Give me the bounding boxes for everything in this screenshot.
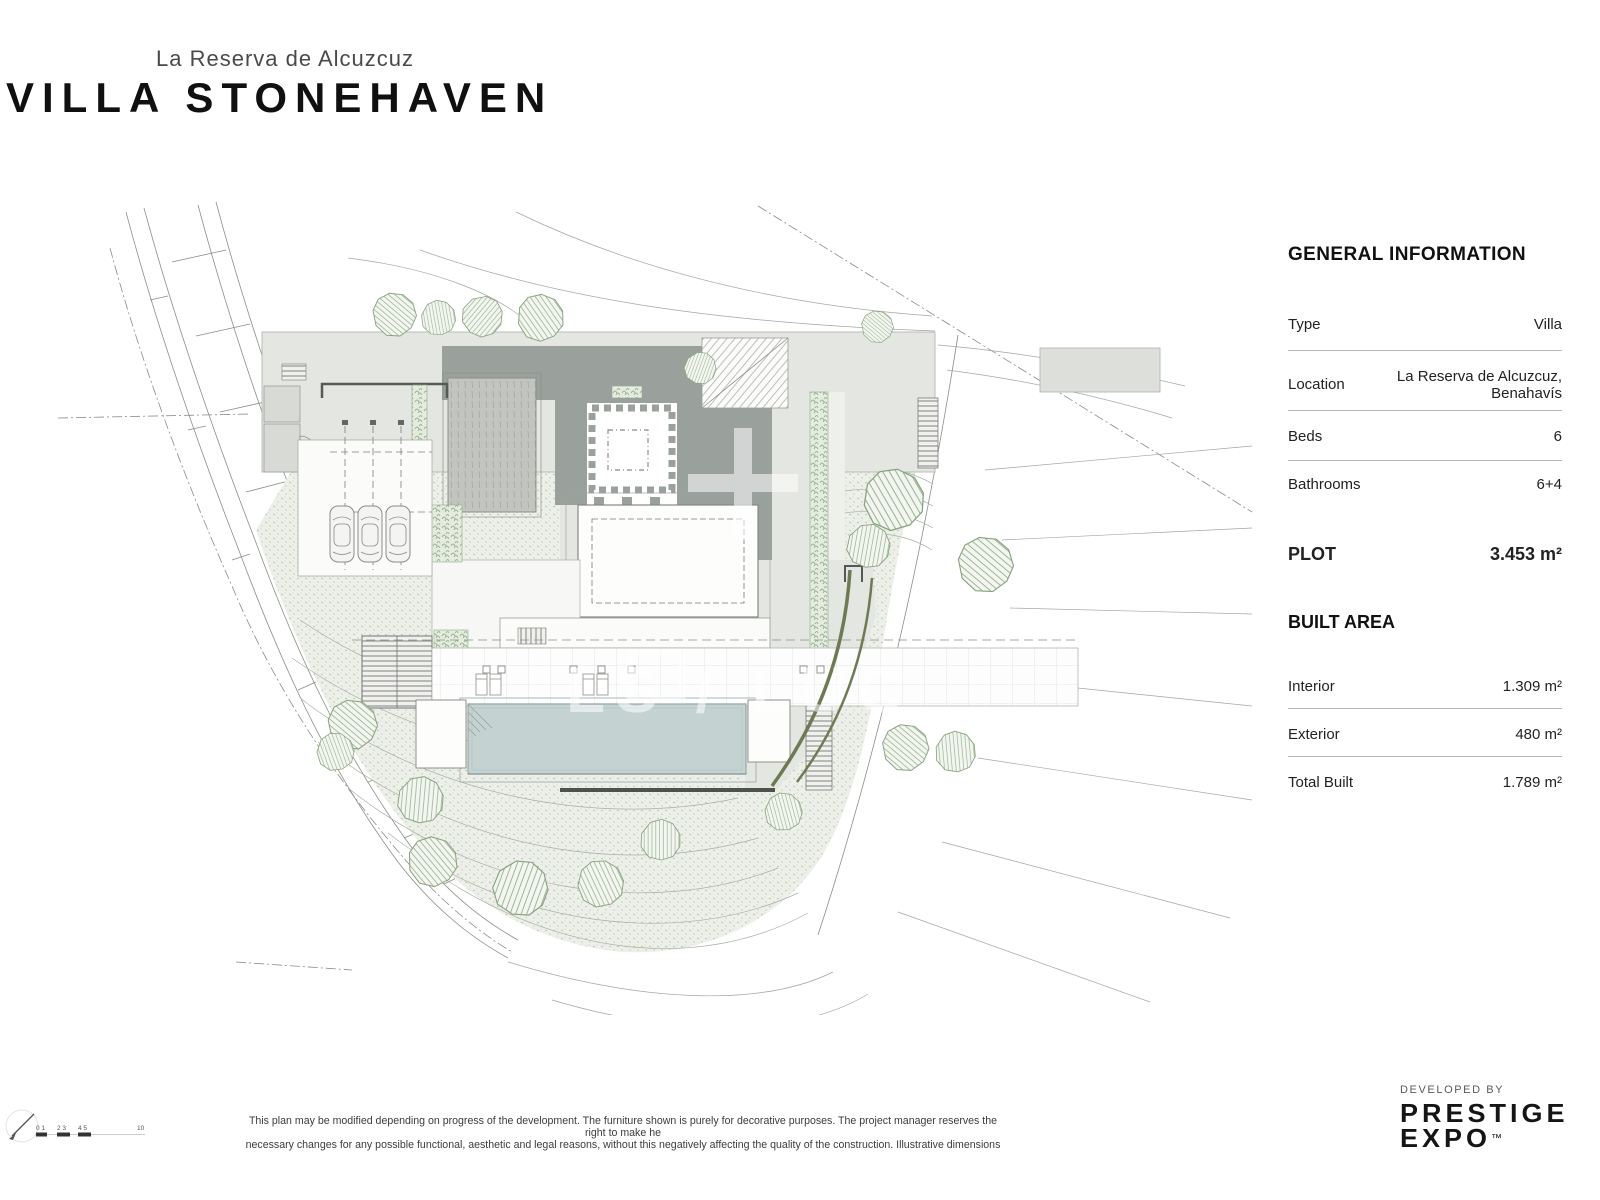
developer-block: DEVELOPED BY PRESTIGE EXPO™ [1400,1084,1570,1152]
brochure-page: La Reserva de Alcuzcuz VILLA STONEHAVEN [0,0,1600,1200]
built-row-exterior: Exterior 480 m² [1288,726,1562,743]
row-label: Total Built [1288,774,1353,791]
row-value: Villa [1534,316,1562,333]
scale-bar: 0 1 2 3 4 5 10 [0,1090,200,1150]
sun-lounger [490,674,501,695]
brand-line2: EXPO [1400,1124,1491,1153]
divider [1288,460,1562,461]
brand-logo: PRESTIGE EXPO™ [1400,1101,1570,1151]
car [358,506,382,562]
info-panel: GENERAL INFORMATION Type Villa Location … [1288,240,1562,800]
disclaimer: This plan may be modified depending on p… [245,1116,1001,1151]
built-area-title: BUILT AREA [1288,612,1395,633]
built-row-interior: Interior 1.309 m² [1288,678,1562,695]
divider [1288,410,1562,411]
built-row-total: Total Built 1.789 m² [1288,774,1562,791]
row-label: Type [1288,316,1321,333]
wood-deck [362,636,432,708]
row-value: 1.309 m² [1503,678,1562,695]
divider [1288,708,1562,709]
scale-label: 0 1 [36,1125,45,1132]
info-row-beds: Beds 6 [1288,428,1562,445]
watermark-text: LS / LUC [566,654,913,726]
parking [298,420,432,576]
scale-label: 10 [137,1125,145,1132]
car [386,506,410,562]
row-value: 6 [1554,428,1562,445]
row-label: Interior [1288,678,1335,695]
row-value: 480 m² [1515,726,1562,743]
info-row-type: Type Villa [1288,316,1562,333]
north-arrow-icon [6,1110,38,1142]
row-label: Location [1288,376,1345,393]
pool-pad-left [416,700,466,768]
site-plan: LS / LUC [0,195,1270,1015]
divider [1288,756,1562,757]
row-value: 6+4 [1537,476,1562,493]
stone-roof [443,373,541,517]
developed-by-label: DEVELOPED BY [1400,1084,1570,1096]
disclaimer-line1: This plan may be modified depending on p… [245,1116,1001,1140]
development-subtitle: La Reserva de Alcuzcuz [156,46,414,72]
info-row-location: Location La Reserva de Alcuzcuz, Benahav… [1288,368,1562,402]
plot-row: PLOT 3.453 m² [1288,544,1562,565]
divider [1288,350,1562,351]
info-row-bathrooms: Bathrooms 6+4 [1288,476,1562,493]
row-value: 1.789 m² [1503,774,1562,791]
scale-label: 2 3 [57,1125,66,1132]
page-title: VILLA STONEHAVEN [6,74,553,122]
row-label: Exterior [1288,726,1340,743]
location-line2: Benahavís [1397,385,1562,402]
location-line1: La Reserva de Alcuzcuz, [1397,368,1562,385]
general-info-title: GENERAL INFORMATION [1288,244,1526,266]
scale-label: 4 5 [78,1125,87,1132]
row-label: Bathrooms [1288,476,1361,493]
disclaimer-line2: necessary changes for any possible funct… [245,1140,1001,1152]
car [330,506,354,562]
courtyard [587,403,677,513]
plot-label: PLOT [1288,544,1336,565]
row-label: Beds [1288,428,1322,445]
trademark-symbol: ™ [1491,1133,1502,1145]
sun-lounger [476,674,487,695]
plot-value: 3.453 m² [1490,544,1562,565]
row-value: La Reserva de Alcuzcuz, Benahavís [1397,368,1562,402]
